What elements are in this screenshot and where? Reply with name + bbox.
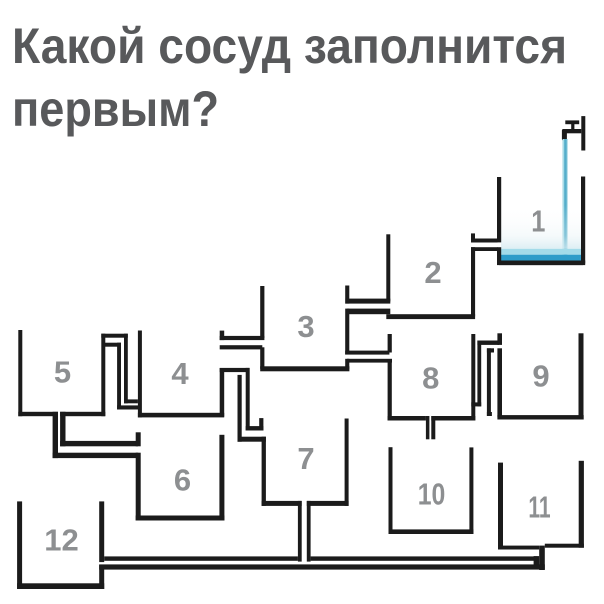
svg-text:8: 8 bbox=[422, 361, 439, 396]
svg-text:7: 7 bbox=[297, 441, 314, 476]
svg-text:первым?: первым? bbox=[12, 81, 219, 137]
svg-text:4: 4 bbox=[171, 356, 189, 391]
svg-text:1: 1 bbox=[531, 204, 545, 239]
svg-text:6: 6 bbox=[174, 463, 191, 498]
svg-text:9: 9 bbox=[532, 359, 549, 394]
svg-text:3: 3 bbox=[297, 309, 314, 344]
svg-text:2: 2 bbox=[424, 255, 441, 290]
svg-text:10: 10 bbox=[418, 477, 446, 511]
svg-text:Какой сосуд заполнится: Какой сосуд заполнится bbox=[12, 18, 567, 74]
svg-text:11: 11 bbox=[528, 489, 550, 524]
svg-text:12: 12 bbox=[44, 523, 78, 558]
svg-text:5: 5 bbox=[54, 355, 71, 390]
